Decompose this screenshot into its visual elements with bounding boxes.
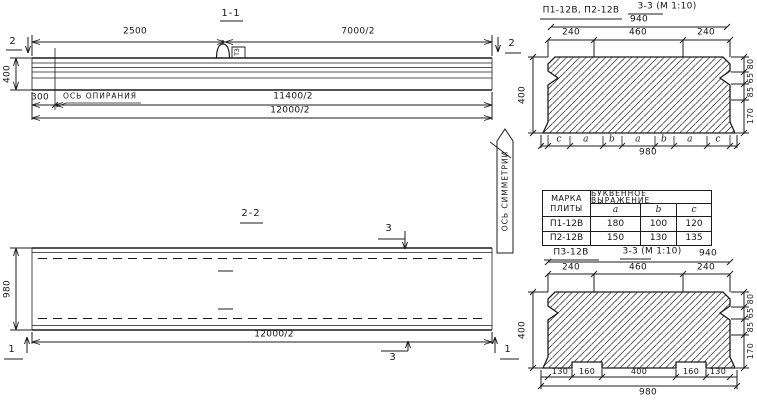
dim-85: 85 (747, 87, 755, 98)
dim-12000-2-bottom: 12000/2 (254, 331, 294, 340)
symmetry-axis-label: ОСЬ СИММЕТРИИ (501, 151, 509, 232)
dim-240-c: 240 (562, 264, 580, 273)
dim-240-b: 240 (697, 29, 715, 38)
cut-mark-3-top: 3 (385, 224, 392, 234)
dim-160-a: 160 (579, 368, 595, 376)
letter-c2: с (715, 136, 720, 145)
section-3-3-top-label: П1-12В, П2-12В (543, 7, 620, 16)
section-3-3-bottom-label: П3-12В (553, 249, 588, 258)
cut-mark-3-bottom: 3 (389, 353, 396, 363)
section-3-3-bottom-title: 3-3 (М 1:10) (622, 248, 681, 257)
dim-80: 80 (747, 59, 755, 70)
dim-130-b: 130 (710, 368, 726, 376)
dim-240-d: 240 (697, 264, 715, 273)
table-row1-c: 120 (677, 217, 711, 232)
dim-400-b: 400 (631, 368, 647, 376)
dim-460: 460 (629, 29, 647, 38)
dim-11400-2: 11400/2 (273, 93, 313, 102)
letter-c1: с (556, 136, 561, 145)
lifting-loop-mark: ТЗ (235, 48, 241, 56)
table-row2-b: 130 (641, 232, 677, 245)
table-col-c: c (677, 204, 711, 217)
dim-400-bottom-section: 400 (519, 321, 528, 339)
table-header-mark-line1: МАРКА (551, 195, 582, 203)
table-row1-b: 100 (641, 217, 677, 232)
dim-height-400: 400 (4, 65, 13, 83)
dim-940-top: 940 (630, 16, 648, 25)
table-row1-mark: П1-12В (543, 217, 591, 232)
dim-170-b: 170 (747, 343, 755, 359)
dim-170: 170 (747, 108, 755, 124)
dim-130-a: 130 (552, 368, 568, 376)
dim-65-b: 65 (747, 308, 755, 319)
section-1-1-title: 1-1 (221, 9, 240, 19)
dim-160-b: 160 (683, 368, 699, 376)
section-3-3-top-title: 3-3 (М 1:10) (637, 3, 696, 12)
dim-80-b: 80 (747, 294, 755, 305)
table-col-b: b (641, 204, 677, 217)
dim-65: 65 (747, 73, 755, 84)
letter-a3: а (687, 136, 693, 145)
dim-300: 300 (31, 94, 49, 103)
support-axis-label: ОСЬ ОПИРАНИЯ (63, 92, 137, 100)
section-1-1-linework (6, 21, 521, 158)
cut-mark-1-right: 1 (504, 345, 511, 355)
dim-85-b: 85 (747, 322, 755, 333)
dim-2500: 2500 (123, 28, 147, 37)
engineering-drawing-sheet: 1-1 2500 7000/2 2 2 400 300 ОСЬ ОПИРАНИЯ… (0, 0, 757, 404)
dim-940-bottom: 940 (699, 250, 717, 259)
dim-400-top-section: 400 (519, 86, 528, 104)
cut-mark-2-right: 2 (508, 39, 515, 49)
letter-b1: b (609, 136, 615, 145)
table-row2-a: 150 (591, 232, 641, 245)
dim-980-top-section: 980 (639, 149, 657, 158)
table-row1-a: 180 (591, 217, 641, 232)
plate-parameters-table: МАРКА ПЛИТЫ БУКВЕННОЕ ВЫРАЖЕНИЕ a b c П1… (542, 190, 712, 246)
letter-a1: а (583, 136, 589, 145)
cut-mark-2-left: 2 (9, 37, 16, 47)
dim-980-bottom-section: 980 (639, 389, 657, 398)
table-row2-c: 135 (677, 232, 711, 245)
cut-mark-1-left: 1 (8, 345, 15, 355)
section-2-2-title: 2-2 (241, 209, 260, 219)
letter-b2: b (661, 136, 667, 145)
table-col-a: a (591, 204, 641, 217)
table-header-mark-line2: ПЛИТЫ (550, 205, 582, 213)
letter-a2: а (635, 136, 641, 145)
dim-460-b: 460 (629, 264, 647, 273)
dim-12000-2-top: 12000/2 (270, 107, 310, 116)
table-row2-mark: П2-12В (543, 232, 591, 245)
dim-240-a: 240 (562, 29, 580, 38)
dim-width-980: 980 (4, 280, 13, 298)
table-header-mark: МАРКА ПЛИТЫ (543, 191, 591, 217)
dim-7000-2: 7000/2 (341, 28, 374, 37)
table-header-letters: БУКВЕННОЕ ВЫРАЖЕНИЕ (591, 191, 711, 204)
